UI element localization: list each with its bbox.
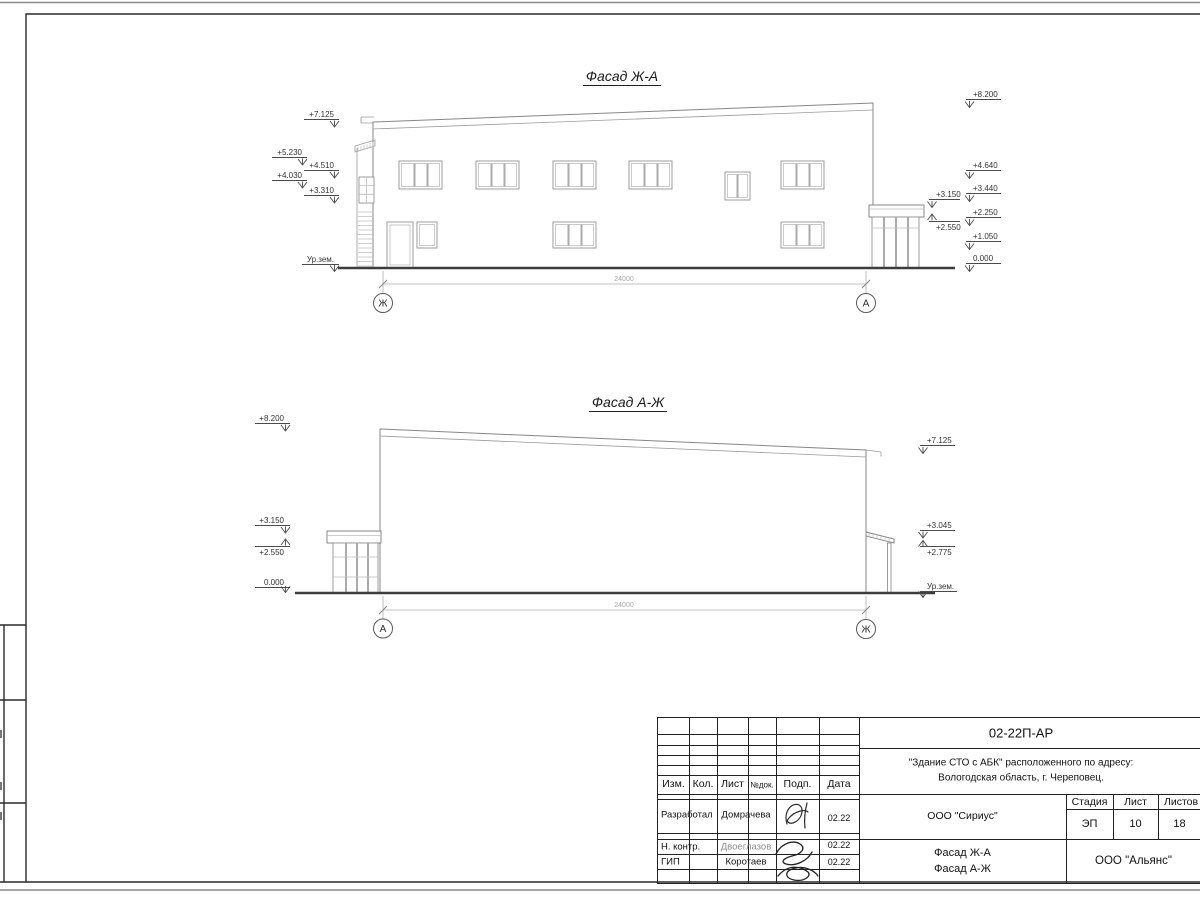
col-sign: Подп. — [784, 778, 812, 790]
sheets-label: Листов — [1164, 796, 1198, 808]
row-name: Домрачева — [721, 810, 770, 821]
elevation-mark-ground: Ур.зем. — [302, 255, 339, 272]
svg-text:+8.200: +8.200 — [973, 90, 998, 99]
elevation-mark: +5.230 — [272, 148, 307, 165]
drawing-sheet: 24000 Ж А +7.125 +5.230 +4.510 +4.030 +3… — [0, 0, 1200, 900]
facade-bottom-drawing: 24000 А Ж +8.200 +3.150 +2.550 0.000 +7.… — [255, 414, 957, 639]
elevation-mark: +4.640 — [965, 161, 1001, 179]
canopy-post — [888, 543, 892, 593]
facade-bottom-title: Фасад А-Ж — [589, 394, 667, 412]
svg-text:+3.150: +3.150 — [259, 516, 284, 525]
sheet-number: 10 — [1129, 818, 1141, 830]
col-list: Лист — [721, 778, 744, 790]
dimension-label: 24000 — [614, 602, 634, 609]
row-role: Разработал — [661, 810, 713, 821]
entrance-porch — [869, 205, 924, 268]
door — [387, 222, 413, 268]
elevation-mark: +3.440 — [965, 184, 1001, 202]
svg-text:+2.550: +2.550 — [259, 548, 284, 557]
elevation-mark: +4.510 — [304, 161, 339, 178]
elevation-mark: 0.000 — [965, 254, 1001, 272]
elevation-mark: +2.550 — [928, 214, 962, 232]
svg-text:+7.125: +7.125 — [927, 436, 952, 445]
elevation-mark: +7.125 — [919, 436, 956, 454]
side-canopy — [866, 532, 894, 593]
svg-text:+3.150: +3.150 — [936, 190, 961, 199]
svg-text:+4.510: +4.510 — [309, 161, 334, 170]
row-name: Коротаев — [725, 856, 766, 867]
row-date: 02.22 — [828, 840, 851, 850]
svg-text:+8.200: +8.200 — [259, 414, 284, 423]
elevation-mark-ground: Ур.зем. — [919, 582, 958, 598]
row-role: ГИП — [661, 856, 680, 867]
axis-bubble-right: А — [857, 294, 876, 313]
svg-text:0.000: 0.000 — [973, 254, 994, 263]
svg-text:Ж: Ж — [861, 625, 871, 636]
elevation-mark: 0.000 — [255, 578, 290, 593]
contractor-org: ООО "Альянс" — [1095, 855, 1172, 867]
elevation-mark: +3.150 — [928, 190, 962, 208]
elevation-mark: +3.045 — [919, 521, 956, 538]
project-address-line1: "Здание СТО с АБК" расположенного по адр… — [909, 758, 1134, 769]
sheet-label: Лист — [1124, 796, 1147, 808]
axis-bubble-left: А — [374, 619, 393, 638]
elevation-mark: +7.125 — [304, 110, 339, 127]
row-date: 02.22 — [828, 813, 851, 823]
elevation-mark: +2.550 — [255, 539, 290, 557]
stairs — [358, 212, 372, 266]
designer-org: ООО "Сириус" — [927, 810, 997, 822]
col-izm: Изм. — [662, 778, 685, 790]
svg-text:+5.230: +5.230 — [277, 148, 302, 157]
title-block: Изм. Кол. Лист №док. Подп. Дата Разработ… — [657, 717, 1200, 884]
stage-label: Стадия — [1072, 796, 1108, 808]
svg-text:Ур.зем.: Ур.зем. — [307, 255, 334, 264]
elevation-mark: +8.200 — [965, 90, 1001, 108]
svg-text:Ж: Ж — [378, 299, 388, 310]
stage-value: ЭП — [1082, 818, 1098, 830]
svg-text:+3.310: +3.310 — [309, 186, 334, 195]
svg-text:+2.775: +2.775 — [927, 548, 952, 557]
signature-developer — [777, 798, 819, 834]
svg-text:+4.640: +4.640 — [973, 161, 998, 170]
svg-text:Ур.зем.: Ур.зем. — [927, 582, 954, 591]
project-address-line2: Вологодская область, г. Череповец. — [938, 773, 1104, 784]
elevation-mark: +8.200 — [255, 414, 290, 431]
dimension-label: 24000 — [614, 276, 634, 283]
elevation-mark: +3.150 — [255, 516, 290, 533]
elevation-mark: +3.310 — [304, 186, 339, 203]
svg-text:А: А — [863, 299, 870, 310]
axis-bubble-left: Ж — [374, 294, 393, 313]
svg-text:+2.550: +2.550 — [936, 223, 961, 232]
elevation-mark: +1.050 — [965, 232, 1001, 250]
svg-text:+2.250: +2.250 — [973, 208, 998, 217]
col-date: Дата — [827, 778, 850, 790]
elevation-mark: +2.250 — [965, 208, 1001, 226]
svg-text:+3.045: +3.045 — [927, 521, 952, 530]
row-role: Н. контр. — [661, 841, 700, 852]
svg-text:+7.125: +7.125 — [309, 110, 334, 119]
signature-approver — [770, 836, 824, 884]
drawing-title-line2: Фасад А-Ж — [934, 863, 991, 875]
entrance-porch — [327, 531, 381, 593]
svg-text:+4.030: +4.030 — [277, 171, 302, 180]
col-kol: Кол. — [693, 778, 714, 790]
svg-text:+1.050: +1.050 — [973, 232, 998, 241]
left-margin-table — [0, 625, 26, 882]
elevation-mark: +4.030 — [272, 171, 307, 188]
svg-text:0.000: 0.000 — [264, 578, 285, 587]
svg-text:А: А — [380, 624, 387, 635]
elevation-mark: +2.775 — [919, 541, 956, 558]
stair-tower — [355, 140, 375, 268]
row-date: 02.22 — [828, 857, 851, 867]
sheets-total: 18 — [1173, 818, 1185, 830]
row-name: Двоеглазов — [721, 841, 772, 852]
facade-top-drawing: 24000 Ж А +7.125 +5.230 +4.510 +4.030 +3… — [272, 90, 1001, 313]
drawing-title-line1: Фасад Ж-А — [934, 847, 991, 859]
axis-bubble-right: Ж — [857, 620, 876, 639]
doc-number: 02-22П-АР — [989, 726, 1053, 741]
svg-text:+3.440: +3.440 — [973, 184, 998, 193]
col-doc: №док. — [750, 780, 773, 789]
facade-top-title: Фасад Ж-А — [583, 68, 661, 86]
left-margin-text-cropped — [0, 730, 2, 738]
